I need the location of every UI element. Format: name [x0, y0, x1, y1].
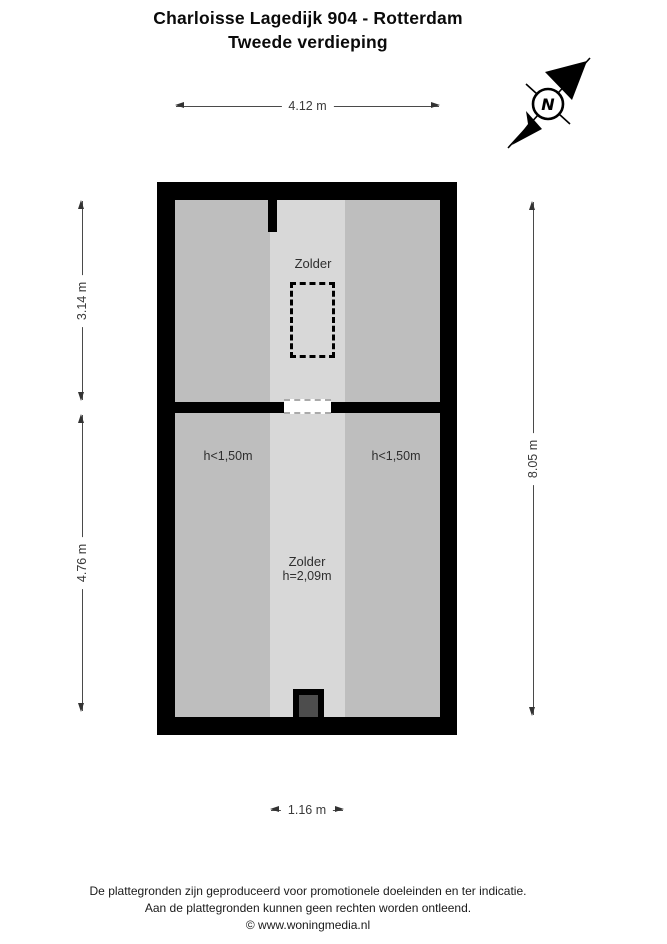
footer-disclaimer-line2: Aan de plattegronden kunnen geen rechten… [0, 900, 616, 917]
dimension-top-width-label: 4.12 m [281, 99, 333, 113]
arrow-up-icon [78, 414, 84, 423]
arrow-up-icon [529, 201, 535, 210]
lower-room-label: Zolder [289, 554, 326, 569]
arrow-up-icon [78, 200, 84, 209]
stair-opening-dashed-outline [290, 282, 335, 358]
arrow-down-icon [529, 707, 535, 716]
dimension-upper-depth-label: 3.14 m [75, 274, 89, 326]
dimension-strip-width-label: 1.16 m [281, 803, 333, 817]
arrow-left-icon [270, 806, 279, 812]
arrow-down-icon [78, 392, 84, 401]
arrow-down-icon [78, 703, 84, 712]
dimension-total-depth-label: 8.05 m [526, 432, 540, 484]
chimney [293, 689, 324, 717]
floorplan-page: Charloisse Lagedijk 904 - Rotterdam Twee… [0, 0, 667, 944]
dimension-total-depth: 8.05 m [526, 201, 540, 716]
compass-north-label: N [541, 95, 555, 114]
dimension-lower-depth-label: 4.76 m [75, 537, 89, 589]
compass-north-icon: N [495, 50, 607, 162]
arrow-right-icon [431, 102, 440, 108]
dimension-lower-depth: 4.76 m [75, 414, 89, 712]
page-title-line1: Charloisse Lagedijk 904 - Rotterdam [0, 8, 616, 29]
lower-room-ceiling-height-label: h=2,09m [283, 569, 332, 583]
low-height-left-label: h<1,50m [204, 449, 253, 463]
arrow-left-icon [175, 102, 184, 108]
arrow-right-icon [335, 806, 344, 812]
low-height-right-label: h<1,50m [372, 449, 421, 463]
footer-copyright: © www.woningmedia.nl [0, 917, 616, 934]
interior-wall-stub [268, 200, 277, 232]
doorway-opening [284, 399, 331, 414]
dimension-strip-width: 1.16 m [270, 803, 344, 817]
upper-room-label: Zolder [295, 256, 332, 271]
footer-disclaimer-line1: De plattegronden zijn geproduceerd voor … [0, 883, 616, 900]
dimension-upper-depth: 3.14 m [75, 200, 89, 401]
dimension-top-width: 4.12 m [175, 99, 440, 113]
